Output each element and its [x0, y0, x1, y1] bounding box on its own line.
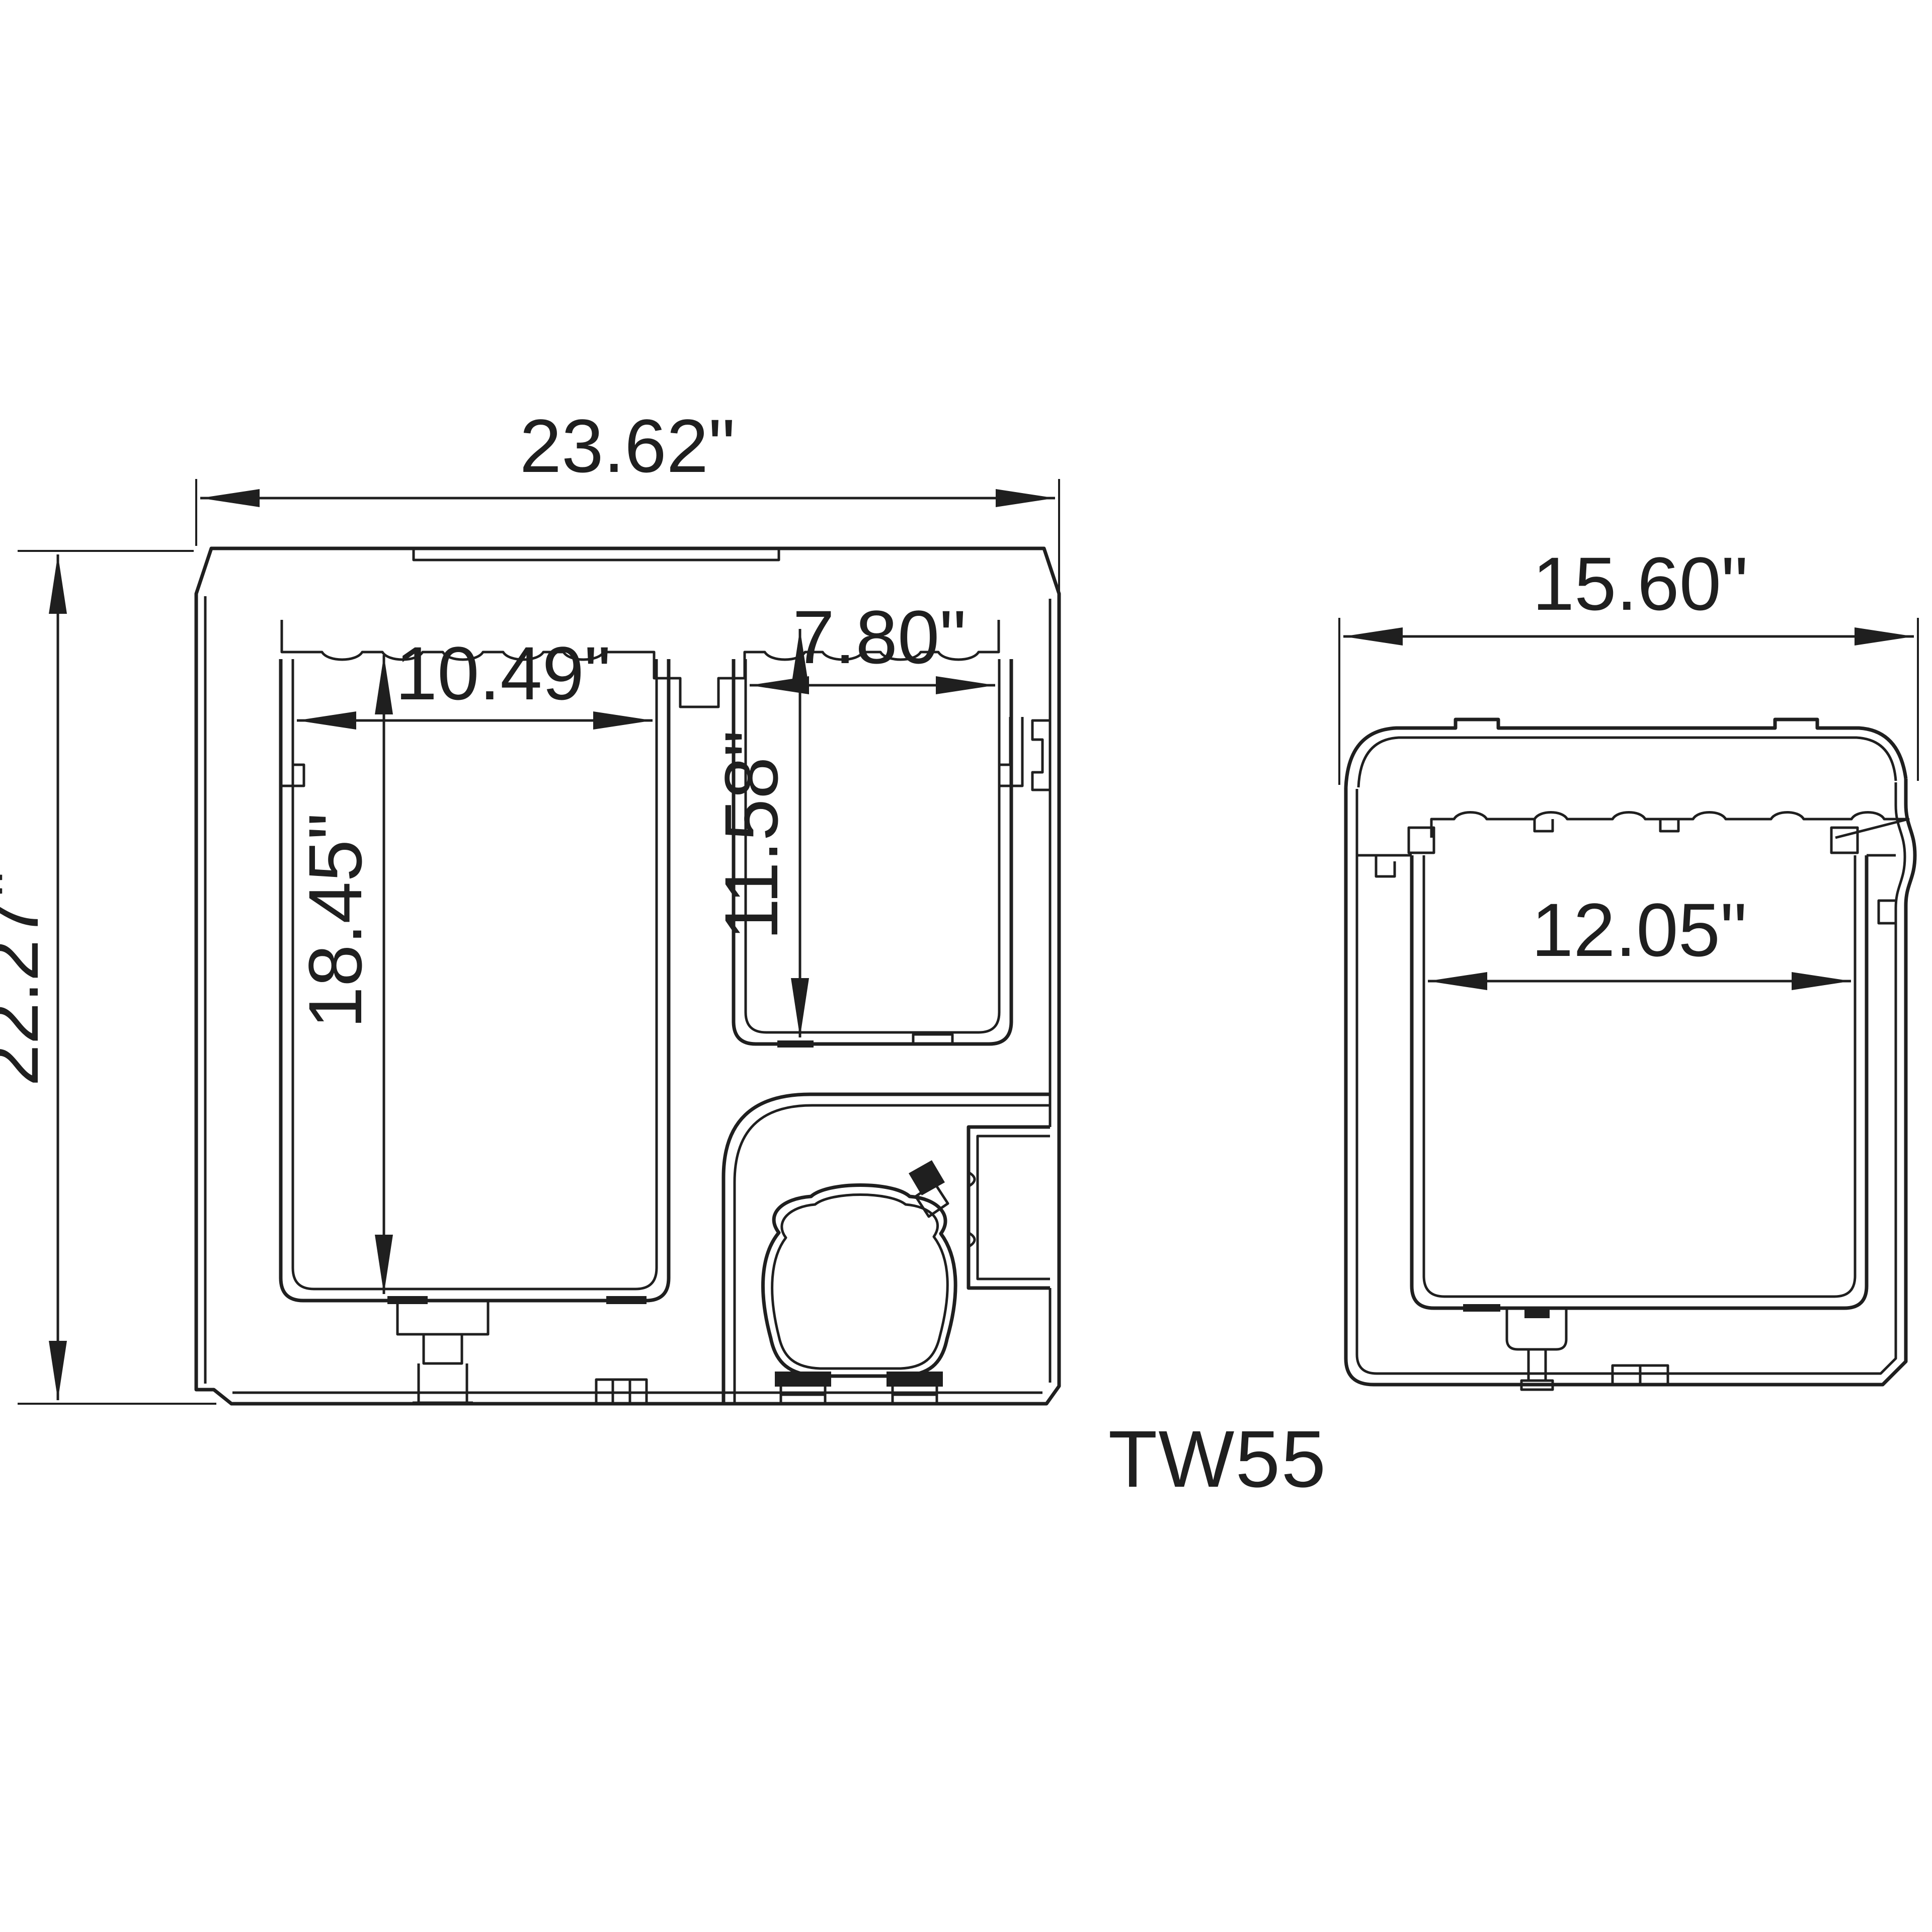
- side-lid-gasket-right: [1831, 828, 1858, 853]
- side-lid-notch-1: [1535, 819, 1553, 831]
- side-drain-cap: [1524, 1308, 1550, 1318]
- dim-label-overall-height: 22.27": [0, 871, 54, 1087]
- dim-label-left-width: 10.49": [395, 631, 611, 715]
- side-lid-inner: [1358, 738, 1896, 787]
- model-label: TW55: [1108, 1414, 1327, 1504]
- side-lid-notch-2: [1660, 819, 1678, 831]
- side-inner-shell: [1357, 782, 1905, 1374]
- side-lid-outer: [1346, 719, 1906, 787]
- side-liner-tab: [1463, 1304, 1500, 1312]
- side-bottom-foot: [1613, 1365, 1668, 1385]
- dim-right-compartment-depth: 11.58": [709, 629, 800, 1037]
- compressor-foot-right: [887, 1372, 943, 1387]
- dim-label-right-width: 7.80": [792, 595, 966, 679]
- dim-right-compartment-width: 7.80": [750, 595, 995, 685]
- dim-ext-line: [196, 479, 1059, 594]
- front-left-liner-tab-1: [387, 1296, 428, 1304]
- dim-left-compartment-width: 10.49": [297, 631, 653, 720]
- dim-label-right-depth: 11.58": [709, 730, 793, 940]
- dim-side-overall-width: 15.60": [1339, 541, 1918, 785]
- front-bottom-clip: [596, 1380, 647, 1403]
- dim-label-side-inner-width: 12.05": [1532, 888, 1747, 972]
- front-right-liner-tab: [777, 1040, 814, 1048]
- dim-label-overall-width: 23.62": [520, 404, 736, 488]
- compressor-inner-line: [772, 1195, 948, 1369]
- front-view: 23.62" 22.27" 10.49" 7.80" 18.45" 11.58": [0, 404, 1059, 1404]
- dim-label-side-width: 15.60": [1533, 541, 1748, 626]
- compressor-rail-right: [893, 1387, 937, 1403]
- side-lid-underside: [1431, 813, 1908, 838]
- front-machine-wall-inner: [735, 1105, 1050, 1404]
- dim-overall-height: 22.27": [0, 551, 216, 1404]
- front-drain-pedestal: [397, 1301, 488, 1403]
- dimension-drawing: 23.62" 22.27" 10.49" 7.80" 18.45" 11.58": [0, 0, 1932, 1932]
- side-view: 15.60" 12.05": [1339, 541, 1918, 1390]
- front-condenser-recess-outer: [969, 1127, 1050, 1288]
- dim-label-left-depth: 18.45": [293, 813, 377, 1029]
- front-right-bracket: [1032, 720, 1050, 790]
- side-rim-step-right: [1867, 855, 1896, 923]
- front-condenser-recess-inner: [978, 1136, 1050, 1279]
- dim-left-compartment-depth: 18.45": [293, 655, 384, 1294]
- front-machine-wall-outer: [723, 1094, 1050, 1404]
- dim-ext-line: [1339, 618, 1918, 785]
- compressor-foot-left: [775, 1372, 831, 1387]
- compressor-rail-left: [781, 1387, 825, 1403]
- dim-side-inner-width: 12.05": [1428, 888, 1851, 981]
- side-rim-step-left: [1357, 855, 1412, 876]
- front-left-liner-tab-2: [606, 1296, 647, 1304]
- dim-overall-width: 23.62": [196, 404, 1059, 594]
